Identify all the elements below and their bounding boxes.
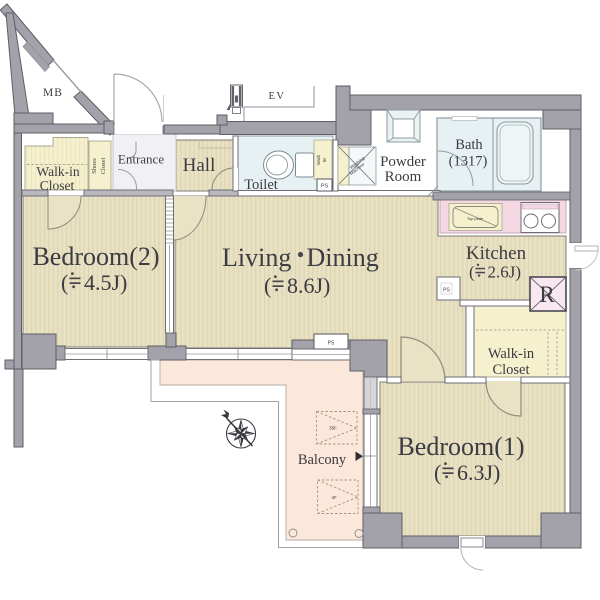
svg-text:PS: PS — [321, 184, 329, 190]
svg-text:4.5J): 4.5J) — [84, 270, 127, 295]
svg-text:PS: PS — [328, 341, 335, 347]
svg-text:Bath: Bath — [455, 137, 483, 153]
svg-text:Room: Room — [385, 169, 422, 185]
svg-text:(: ( — [469, 263, 475, 282]
svg-text:Bedroom(2): Bedroom(2) — [32, 242, 159, 271]
svg-text:Balcony: Balcony — [298, 452, 347, 468]
svg-text:2.6J): 2.6J) — [488, 263, 522, 282]
svg-text:35F: 35F — [329, 426, 337, 431]
svg-text:MB: MB — [43, 87, 63, 99]
svg-text:(: ( — [434, 460, 441, 485]
svg-text:(: ( — [264, 273, 271, 298]
svg-text:Wash: Wash — [316, 154, 321, 165]
svg-text:Walk-in: Walk-in — [36, 164, 79, 179]
svg-text:PS: PS — [443, 288, 450, 294]
svg-text:Toilet: Toilet — [244, 177, 278, 193]
svg-text:6.3J): 6.3J) — [457, 460, 500, 485]
svg-text:(1317): (1317) — [449, 154, 488, 170]
svg-text:Powder: Powder — [380, 154, 426, 170]
svg-text:8.6J): 8.6J) — [287, 273, 330, 298]
svg-text:4F: 4F — [331, 495, 337, 500]
svg-text:Closet: Closet — [492, 362, 529, 378]
svg-text:Closet: Closet — [40, 178, 75, 193]
svg-text:EV: EV — [269, 91, 286, 102]
svg-text:Living: Living — [222, 243, 291, 272]
svg-text:Shoes: Shoes — [91, 158, 98, 174]
svg-text:Kitchen: Kitchen — [466, 243, 527, 264]
svg-text:Dining: Dining — [307, 243, 379, 272]
svg-text:R: R — [539, 282, 555, 307]
svg-text:Entrance: Entrance — [118, 152, 164, 167]
svg-text:Bedroom(1): Bedroom(1) — [397, 432, 524, 461]
svg-text:(: ( — [61, 270, 68, 295]
svg-text:Walk-in: Walk-in — [488, 346, 535, 362]
svg-text:Hall: Hall — [183, 155, 216, 176]
svg-text:Closet: Closet — [100, 158, 107, 175]
svg-text:Top plate: Top plate — [467, 216, 484, 221]
